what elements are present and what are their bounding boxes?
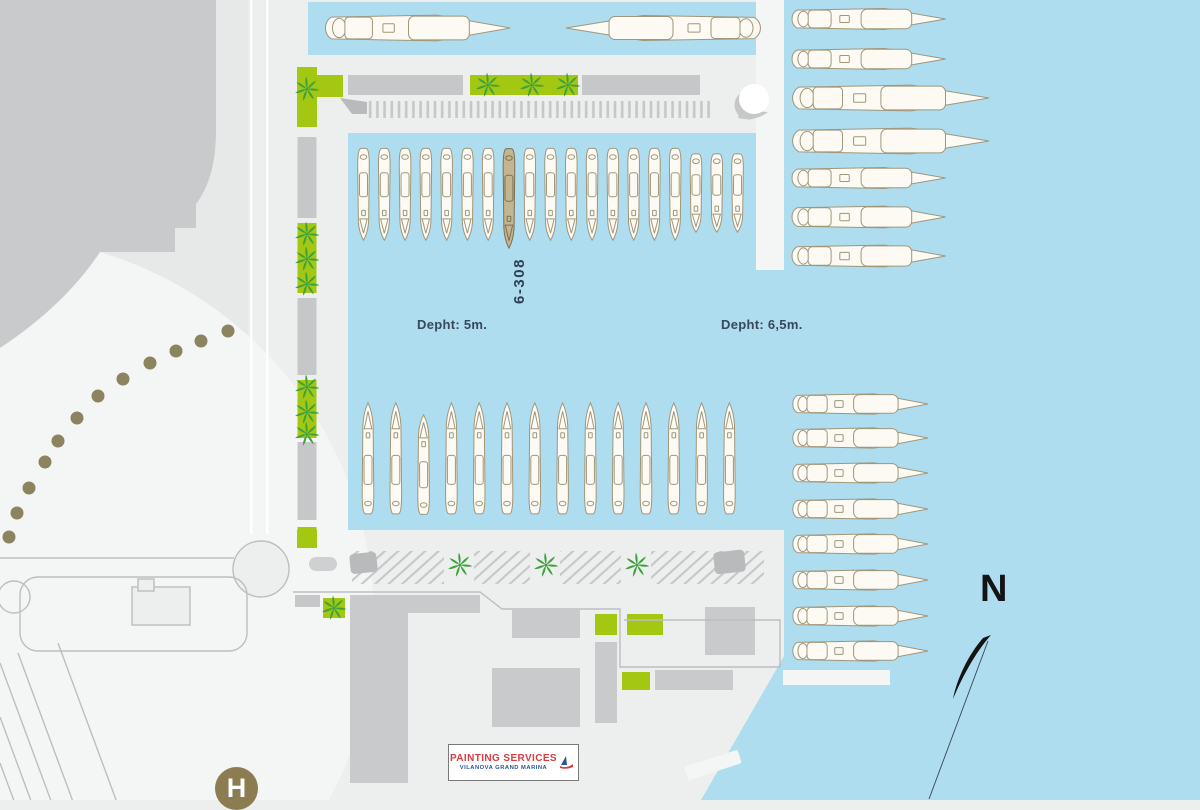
sail-logo-icon: [558, 755, 575, 770]
depth-label-west-basin: Depht: 5m.: [417, 317, 487, 332]
marina-map: [0, 0, 1200, 800]
logo-subtitle: VILANOVA GRAND MARINA: [460, 765, 547, 772]
compass-north-label: N: [980, 568, 1007, 611]
depth-label-east-channel: Depht: 6,5m.: [721, 317, 803, 332]
logo-title: PAINTING SERVICES: [450, 753, 557, 765]
highlighted-berth-boat[interactable]: [503, 149, 515, 249]
marina-map-canvas: [0, 0, 1200, 800]
painting-services-logo: PAINTING SERVICES VILANOVA GRAND MARINA: [448, 744, 579, 781]
helipad-marker: H: [215, 767, 258, 810]
berth-number-label: 6-308: [511, 246, 531, 316]
helipad-letter: H: [227, 775, 247, 802]
